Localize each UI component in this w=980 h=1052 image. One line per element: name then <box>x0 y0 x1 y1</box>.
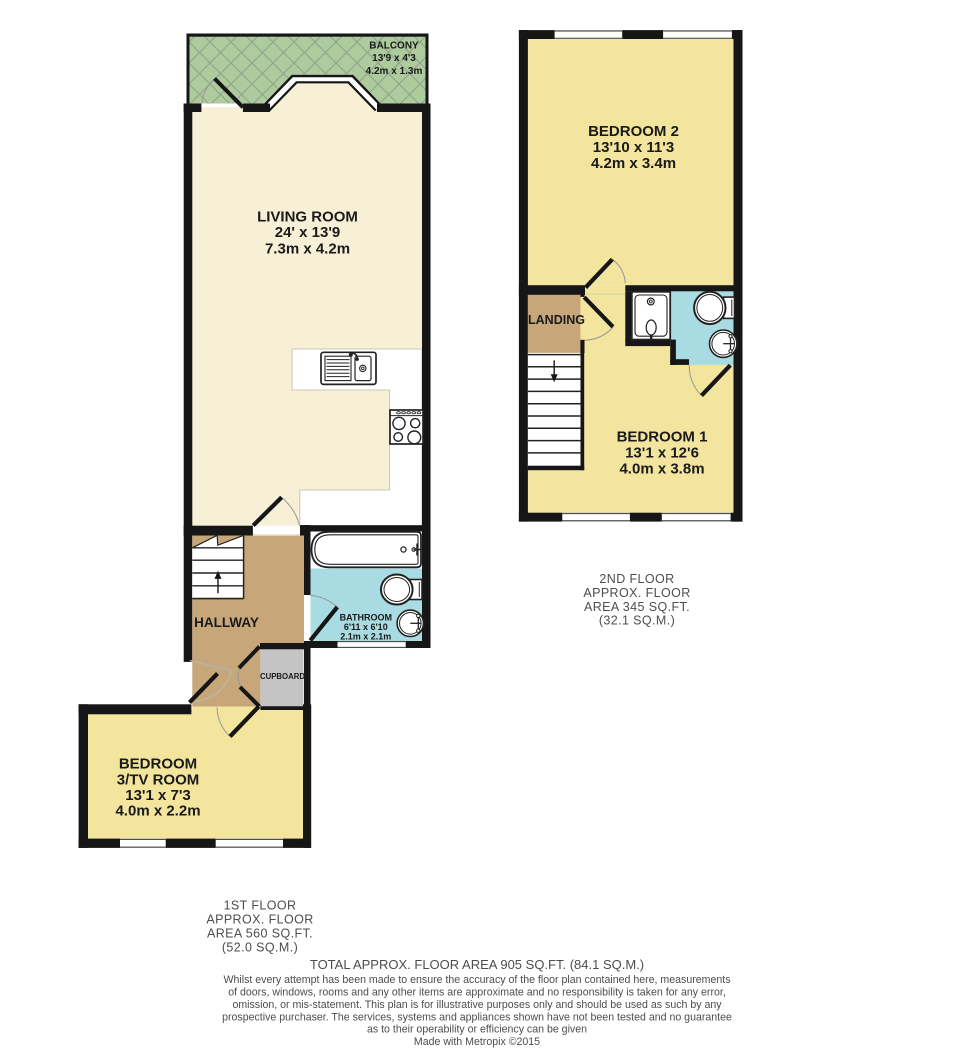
svg-text:(52.0 SQ.M.): (52.0 SQ.M.) <box>222 941 298 955</box>
svg-text:13'9 x 4'3: 13'9 x 4'3 <box>372 53 416 64</box>
svg-text:TOTAL APPROX. FLOOR AREA 905 S: TOTAL APPROX. FLOOR AREA 905 SQ.FT. (84.… <box>310 957 644 972</box>
svg-text:LANDING: LANDING <box>528 313 585 327</box>
svg-text:24' x 13'9: 24' x 13'9 <box>275 224 341 241</box>
svg-text:Whilst every attempt has been: Whilst every attempt has been made to en… <box>223 974 730 986</box>
svg-text:AREA 560 SQ.FT.: AREA 560 SQ.FT. <box>207 927 313 941</box>
svg-text:6'11 x 6'10: 6'11 x 6'10 <box>344 622 388 632</box>
svg-text:7.3m x 4.2m: 7.3m x 4.2m <box>265 240 350 257</box>
svg-text:4.0m x 3.8m: 4.0m x 3.8m <box>619 461 704 478</box>
svg-text:of doors, windows, rooms and a: of doors, windows, rooms and any other i… <box>228 986 726 998</box>
svg-text:13'1 x 12'6: 13'1 x 12'6 <box>625 445 699 462</box>
svg-text:3/TV ROOM: 3/TV ROOM <box>117 771 200 788</box>
svg-text:4.0m x 2.2m: 4.0m x 2.2m <box>115 803 200 820</box>
svg-text:omission, or mis-statement. Th: omission, or mis-statement. This plan is… <box>232 999 722 1011</box>
svg-text:APPROX. FLOOR: APPROX. FLOOR <box>583 586 690 600</box>
svg-text:(32.1 SQ.M.): (32.1 SQ.M.) <box>599 614 675 628</box>
svg-text:as to their operability or eff: as to their operability or efficiency ca… <box>367 1024 587 1036</box>
svg-text:4.2m x 3.4m: 4.2m x 3.4m <box>591 155 676 172</box>
svg-text:APPROX. FLOOR: APPROX. FLOOR <box>206 913 313 927</box>
svg-text:4.2m x 1.3m: 4.2m x 1.3m <box>366 66 423 77</box>
svg-text:BEDROOM 1: BEDROOM 1 <box>617 429 708 446</box>
svg-text:2.1m x 2.1m: 2.1m x 2.1m <box>340 632 391 642</box>
svg-text:prospective purchaser. The ser: prospective purchaser. The services, sys… <box>222 1011 732 1023</box>
svg-text:1ST FLOOR: 1ST FLOOR <box>224 899 297 913</box>
svg-text:HALLWAY: HALLWAY <box>194 615 259 630</box>
svg-text:Made with Metropix ©2015: Made with Metropix ©2015 <box>414 1036 540 1048</box>
svg-text:BEDROOM: BEDROOM <box>119 756 197 773</box>
svg-text:CUPBOARD: CUPBOARD <box>260 672 305 681</box>
svg-text:13'1 x 7'3: 13'1 x 7'3 <box>125 787 191 804</box>
svg-text:2ND FLOOR: 2ND FLOOR <box>599 572 674 586</box>
svg-text:LIVING ROOM: LIVING ROOM <box>257 208 358 225</box>
svg-text:BALCONY: BALCONY <box>369 41 419 52</box>
svg-text:AREA 345 SQ.FT.: AREA 345 SQ.FT. <box>584 600 690 614</box>
svg-text:BEDROOM 2: BEDROOM 2 <box>588 123 679 140</box>
svg-text:13'10 x 11'3: 13'10 x 11'3 <box>593 139 674 156</box>
